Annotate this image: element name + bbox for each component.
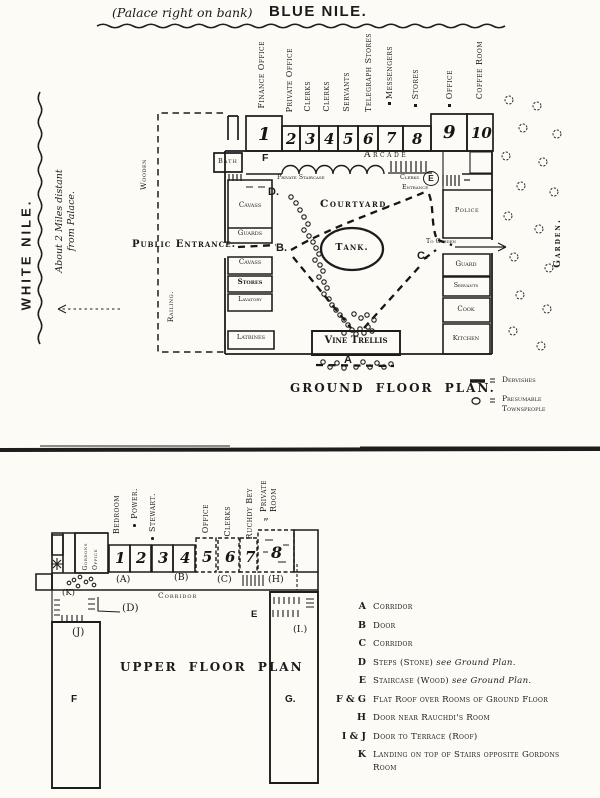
legend-key: C — [330, 638, 366, 649]
legend-text: Landing on top of Stairs opposite Gordon… — [373, 750, 559, 760]
legend-text: Steps (Stone) — [373, 658, 433, 668]
distance-note-line1: About 2 Miles distant — [54, 169, 65, 272]
uf-room8-ditto: ” — [263, 516, 269, 529]
legend-key: I & J — [330, 731, 366, 742]
gf-room2-label: Private Office — [285, 48, 294, 112]
roof-f-box — [52, 622, 100, 788]
marker-g-upper: G. — [285, 694, 296, 705]
legend-note: see Ground Plan. — [452, 676, 531, 686]
fence-label-railing: Railing. — [166, 291, 175, 322]
marker-f-ground: F — [262, 152, 268, 164]
uf-room2-number: 2 — [136, 549, 146, 567]
uf-room1-number: 1 — [115, 549, 125, 567]
marker-c-upper: (C) — [217, 574, 232, 585]
uf-room3-label: Stewart. — [148, 493, 157, 532]
uf-room7-number: 7 — [245, 548, 255, 566]
lavatory-label: Lavatory — [230, 296, 270, 303]
title-prefix: (Palace right on bank) — [112, 5, 253, 20]
gf-room3-number: 3 — [305, 130, 315, 148]
to-garden-arrow — [455, 243, 506, 251]
latrines-label: Latrines — [230, 333, 272, 341]
marker-e-circled: E — [423, 171, 439, 186]
uf-room5-label: Office — [201, 504, 210, 533]
gf-room9-number: 9 — [443, 122, 456, 143]
marker-e-letter: E — [428, 173, 434, 183]
distance-note: About 2 Miles distant from Palace. — [54, 141, 78, 301]
corridor-label: Corridor — [158, 591, 197, 600]
uf-room3-ditto-dot — [151, 537, 154, 540]
legend-text: Corridor — [373, 602, 413, 612]
marker-d-ground: D. — [268, 186, 279, 198]
legend-townspeople-label: Townspeople — [502, 404, 546, 413]
legend-row: KLanding on top of Stairs opposite Gordo… — [330, 749, 592, 774]
fence-label-wooden: Wooden — [139, 159, 148, 190]
uf-room8-label-line2: Room — [269, 488, 278, 512]
marker-j-upper: (J) — [72, 626, 84, 638]
distance-arrow — [58, 305, 120, 313]
uf-room6-label: Clerks — [223, 506, 232, 537]
legend-key: D — [330, 657, 366, 668]
legend-row: F & GFlat Roof over Rooms of Ground Floo… — [330, 694, 592, 707]
arcade-label: Arcade — [364, 150, 408, 160]
gf-room4-number: 4 — [324, 130, 334, 148]
legend-text: Door — [373, 621, 395, 631]
upper-floor-caption: UPPER FLOOR PLAN — [120, 660, 304, 674]
legend-key: F & G — [330, 694, 366, 705]
marker-e-upper: E — [251, 609, 257, 620]
upper-floor-legend: ACorridor BDoor CCorridor DSteps (Stone)… — [330, 601, 592, 780]
legend-key: K — [330, 749, 366, 760]
section-divider — [0, 446, 600, 450]
page-title: BLUE NILE. — [269, 3, 367, 20]
gf-room3-label: Clerks — [303, 81, 312, 112]
cook-label: Cook — [446, 305, 486, 313]
legend-text: Staircase (Wood) — [373, 676, 449, 686]
uf-room8-number: 8 — [271, 543, 282, 562]
cavass-lower-label: Cavass — [230, 258, 270, 266]
courtyard-label: Courtyard. — [320, 198, 392, 210]
legend-text: Door near Rauchdi's Room — [373, 713, 490, 723]
gordons-office-label-line1: Gordons — [82, 543, 89, 570]
tank-label: Tank. — [332, 242, 372, 253]
marker-a-upper: (A) — [116, 574, 130, 585]
guard-label: Guard — [446, 260, 486, 268]
uf-room3-number: 3 — [158, 549, 168, 567]
servants-label: Servants — [446, 282, 486, 289]
gf-room7-label: Messengers — [385, 46, 394, 99]
legend-row: ACorridor — [330, 601, 592, 614]
distance-note-line2: from Palace. — [66, 191, 77, 251]
gf-room6-number: 6 — [363, 130, 373, 148]
legend-row: CCorridor — [330, 638, 592, 651]
police-label: Police — [447, 206, 487, 214]
gf-room5-number: 5 — [343, 130, 353, 148]
arcade-and-staircases — [229, 161, 492, 186]
private-staircase-label: Private Staircase — [277, 174, 325, 181]
legend-row: HDoor near Rauchdi's Room — [330, 712, 592, 725]
ground-ditto-dots — [388, 102, 451, 107]
public-entrance-label: Public Entrance. — [132, 239, 236, 250]
legend-text-cont: Room — [373, 763, 397, 773]
uf-room2-label: Power. — [130, 488, 139, 519]
legend-key: B — [330, 620, 366, 631]
legend-text: Flat Roof over Rooms of Ground Floor — [373, 695, 548, 705]
uf-room8-label-line1: Private — [259, 480, 268, 512]
gordons-office-label-line2: Office — [92, 549, 99, 570]
marker-i-upper: (I.) — [293, 624, 307, 635]
legend-row: BDoor — [330, 620, 592, 633]
legend-text: Corridor — [373, 639, 413, 649]
blue-nile-bank-line — [97, 24, 505, 28]
ground-right-rooms — [443, 190, 492, 354]
gf-room1-label: Finance Office — [257, 41, 266, 109]
uf-room6-number: 6 — [225, 548, 235, 566]
gf-room9-label: Office — [445, 70, 454, 99]
marker-k-upper: (K) — [62, 588, 75, 598]
wood-staircase — [273, 597, 314, 617]
white-nile-bank-line — [38, 92, 42, 344]
floor-plan-page: (Palace right on bank) BLUE NILE. WHITE … — [0, 0, 600, 798]
vine-trellis-label: Vine Trellis — [314, 335, 398, 346]
clerks-entrance-label-bottom: Entrance — [402, 184, 428, 191]
upper-townspeople-circles — [67, 575, 96, 588]
roof-g-box — [270, 592, 318, 783]
stores-label: Stores — [230, 277, 270, 286]
marker-f-upper: F — [71, 694, 77, 705]
gf-room6-label: Telegraph Stores — [364, 33, 373, 112]
gf-room1-number: 1 — [258, 124, 271, 145]
gf-room5-label: Servants — [342, 72, 351, 112]
gf-room8-number: 8 — [412, 130, 422, 148]
legend-key: A — [330, 601, 366, 612]
legend-note: see Ground Plan. — [436, 658, 515, 668]
cavass-upper-label: Cavass — [230, 201, 270, 209]
garden-label: Garden. — [553, 218, 563, 268]
legend-key: E — [330, 675, 366, 686]
guards-label: Guards — [230, 229, 270, 237]
marker-d-upper: (D) — [122, 602, 139, 614]
legend-presumable-label: Presumable — [502, 394, 541, 403]
marker-c-ground: C. — [417, 250, 428, 262]
legend-row: EStaircase (Wood) see Ground Plan. — [330, 675, 592, 688]
gf-room8-label: Stores — [411, 69, 420, 99]
legend-row: DSteps (Stone) see Ground Plan. — [330, 657, 592, 670]
marker-h-upper: (H) — [268, 574, 284, 585]
gf-room10-number: 10 — [471, 124, 492, 142]
ground-floor-caption: GROUND FLOOR PLAN. — [290, 381, 496, 395]
marker-a-ground: A — [344, 354, 352, 366]
gf-room7-number: 7 — [386, 129, 396, 147]
legend-key: H — [330, 712, 366, 723]
uf-room2-ditto-dot — [133, 524, 136, 527]
uf-room1-label: Bedroom — [112, 495, 121, 534]
legend-dervishes-label: Dervishes — [502, 375, 536, 384]
to-garden-label: To Garden — [426, 238, 456, 245]
gf-room2-number: 2 — [286, 130, 296, 148]
uf-room4-number: 4 — [180, 549, 190, 567]
bath-label: Bath — [218, 157, 238, 165]
marker-b-ground: B. — [276, 242, 287, 254]
legend-text: Door to Terrace (Roof) — [373, 732, 478, 742]
legend-row: I & JDoor to Terrace (Roof) — [330, 731, 592, 744]
uf-room5-number: 5 — [202, 548, 212, 566]
marker-b-upper: (B) — [174, 572, 188, 583]
white-nile-label: WHITE NILE. — [19, 180, 34, 330]
gf-room10-label: Coffee Room — [475, 41, 484, 99]
kitchen-label: Kitchen — [446, 334, 486, 342]
gf-room4-label: Clerks — [322, 81, 331, 112]
clerks-entrance-label-top: Clerks — [400, 174, 419, 181]
uf-room7-label: Ruchdy Bey — [245, 488, 254, 539]
